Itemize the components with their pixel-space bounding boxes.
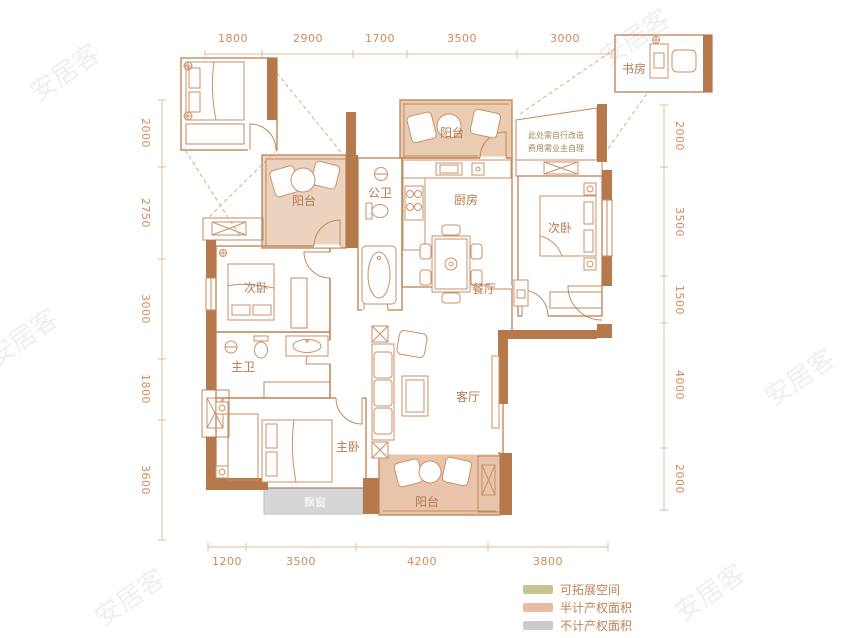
- room-label-public-bath: 公卫: [368, 186, 392, 200]
- front-door: [568, 286, 602, 320]
- watermarks: 安居客 安居客 安居客 安居客 安居客 安居客: [0, 4, 841, 633]
- bedroom-right-furniture: [540, 183, 602, 308]
- legend-label-expandable: 可拓展空间: [560, 583, 620, 597]
- dimension-right: 2000 3500 1500 4000 2000: [660, 105, 686, 510]
- dim-label: 1200: [212, 555, 242, 568]
- dim-label: 2000: [139, 118, 152, 148]
- watermark-text: 安居客: [760, 344, 841, 413]
- room-label-balcony-bottom: 阳台: [415, 494, 439, 509]
- legend-swatch-excluded-area: [523, 621, 553, 630]
- dim-label: 3500: [286, 555, 316, 568]
- dim-label: 2900: [293, 32, 323, 45]
- dimension-top: 1800 2900 1700 3500 3000: [205, 32, 612, 58]
- dim-label: 2750: [139, 198, 152, 228]
- expand-note: 此处需自行改造 费用需业主自理: [528, 130, 584, 153]
- legend-label-excluded-area: 不计产权面积: [560, 619, 632, 633]
- master-bedroom-furniture: [216, 382, 332, 482]
- dim-label: 3000: [139, 294, 152, 324]
- dim-label: 3500: [447, 32, 477, 45]
- dim-label: 2000: [673, 464, 686, 494]
- room-label-bedroom-left: 次卧: [244, 281, 268, 295]
- legend-label-half-area: 半计产权面积: [560, 601, 632, 615]
- expand-note-line1: 此处需自行改造: [528, 130, 584, 140]
- callout-bedroom-furniture: [184, 62, 244, 144]
- watermark-text: 安居客: [670, 559, 751, 628]
- room-label-dining: 餐厅: [472, 281, 496, 296]
- room-label-master-bath: 主卫: [231, 360, 255, 374]
- window-bedroom-left: [206, 278, 216, 310]
- dim-label: 1700: [365, 32, 395, 45]
- master-bath-fixtures: [225, 336, 328, 358]
- room-label-balcony-left: 阳台: [292, 193, 316, 208]
- watermark-text: 安居客: [0, 304, 64, 373]
- dim-label: 3800: [533, 555, 563, 568]
- floor-plan-svg: 安居客 安居客 安居客 安居客 安居客 安居客 1800 2900 1700 3…: [0, 0, 850, 638]
- dim-label: 2000: [673, 121, 686, 151]
- room-label-bay-window: 飘窗: [304, 495, 326, 509]
- window-bedroom-right: [602, 200, 612, 256]
- room-label-bedroom-right: 次卧: [548, 221, 572, 235]
- dim-label: 3000: [550, 32, 580, 45]
- dim-label: 4000: [673, 370, 686, 400]
- dim-label: 1800: [218, 32, 248, 45]
- dim-label: 4200: [407, 555, 437, 568]
- watermark-text: 安居客: [25, 39, 106, 108]
- legend-swatch-half-area: [523, 603, 553, 612]
- legend: 可拓展空间 半计产权面积 不计产权面积: [523, 583, 632, 633]
- room-label-study: 书房: [622, 61, 646, 76]
- dimension-bottom: 1200 3500 4200 3800: [208, 543, 608, 568]
- room-label-kitchen: 厨房: [454, 192, 478, 207]
- dim-label: 3600: [139, 465, 152, 495]
- legend-swatch-expandable: [523, 585, 553, 594]
- dim-label: 1500: [673, 285, 686, 315]
- watermark-text: 安居客: [90, 564, 171, 633]
- room-label-balcony-top: 阳台: [440, 125, 464, 140]
- room-label-master-bedroom: 主卧: [336, 440, 360, 454]
- study-furniture: [650, 37, 696, 79]
- dim-label: 3500: [673, 207, 686, 237]
- expand-note-line2: 费用需业主自理: [528, 143, 584, 153]
- dim-label: 1800: [139, 374, 152, 404]
- entry-cabinet: [514, 280, 528, 306]
- dimension-left: 2000 2750 3000 1800 3600: [139, 100, 166, 540]
- room-label-living: 客厅: [456, 389, 480, 404]
- floor-plan-canvas: 安居客 安居客 安居客 安居客 安居客 安居客 1800 2900 1700 3…: [0, 0, 850, 638]
